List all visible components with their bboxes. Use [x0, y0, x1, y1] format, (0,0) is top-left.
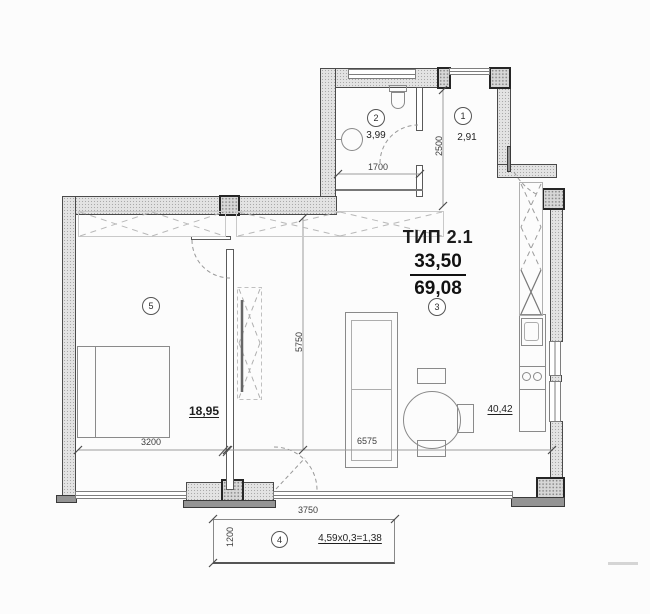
window-living-icon	[273, 491, 513, 499]
toilet-bowl-icon	[391, 92, 405, 109]
sofa-divider	[351, 389, 392, 390]
window-right-upper-icon	[549, 341, 561, 376]
area-primary-value: 33,50	[394, 251, 482, 276]
room-circle-4: 4	[271, 531, 288, 548]
bed-headboard-line	[95, 346, 96, 438]
chair-top-icon	[417, 368, 446, 384]
room-area-bathroom: 3,99	[358, 130, 394, 141]
room-area-hall: 2,91	[449, 132, 485, 143]
room-circle-5: 5	[142, 297, 160, 315]
toilet-tank-icon	[389, 85, 407, 92]
kitchen-sink-basin	[524, 322, 539, 341]
partition-bedroom-living	[226, 249, 234, 490]
balcony-area-formula: 4,59x0,3=1,38	[305, 533, 395, 544]
stove-burner-left	[522, 372, 531, 381]
stove-burner-right	[533, 372, 542, 381]
room-area-bedroom: 18,95	[182, 404, 226, 418]
apartment-type-label: ТИП 2.1	[394, 227, 482, 248]
chair-right-icon	[457, 404, 474, 433]
cap-left-wall-end	[56, 495, 77, 503]
wall-left	[62, 196, 76, 501]
window-bathroom-icon	[348, 69, 416, 79]
area-total-value: 69,08	[394, 278, 482, 300]
dim-bedroom-width: 3200	[133, 437, 169, 447]
dim-bath-width: 1700	[358, 162, 398, 172]
mark-bottom-right	[608, 562, 638, 565]
wall-top-main	[62, 196, 337, 215]
wall-bathroom-south	[336, 189, 423, 191]
bed-icon	[77, 346, 170, 438]
dim-hall-depth: 2500	[434, 128, 444, 164]
door-swing-balcony-icon	[274, 447, 317, 490]
sill-bottom-right	[511, 497, 565, 507]
window-bedroom-icon	[75, 491, 187, 499]
bath-sink-tap	[335, 139, 342, 140]
room-circle-2: 2	[367, 109, 385, 127]
floor-plan: ТИП 2.1 33,50 69,08 1 2 3 4 5 2,91 3,99 …	[0, 0, 650, 614]
room-area-living: 40,42	[481, 404, 519, 415]
room-circle-3: 3	[428, 298, 446, 316]
column-right-top	[542, 188, 565, 210]
sill-balcony-pier	[183, 500, 276, 508]
column-entry-top	[489, 67, 511, 89]
title-block: ТИП 2.1 33,50 69,08	[394, 227, 482, 300]
wardrobe-right-icon	[520, 183, 543, 316]
door-leaf-bedroom	[191, 236, 231, 240]
wall-entry-horizontal	[497, 164, 557, 178]
dim-balcony-width: 3750	[288, 505, 328, 515]
wall-right-upper	[550, 209, 563, 342]
wardrobe-strip-left-icon	[79, 212, 226, 237]
door-leaf-entry	[507, 146, 511, 172]
dim-sofa-wall: 6575	[349, 436, 385, 446]
entry-threshold	[449, 68, 490, 75]
door-swing-bedroom-icon	[192, 240, 230, 278]
dim-balcony-depth: 1200	[225, 519, 235, 555]
wall-right-lower	[550, 421, 563, 480]
wall-bathroom-left	[320, 68, 336, 215]
window-right-lower-icon	[549, 381, 561, 422]
column-top-middle	[219, 195, 240, 216]
partition-bathroom-lower	[416, 165, 423, 197]
chair-bottom-icon	[417, 440, 446, 457]
closet-living-icon	[238, 288, 262, 400]
partition-bathroom-upper	[416, 87, 423, 131]
dim-room-depth: 5750	[294, 324, 304, 360]
room-circle-1: 1	[454, 107, 472, 125]
